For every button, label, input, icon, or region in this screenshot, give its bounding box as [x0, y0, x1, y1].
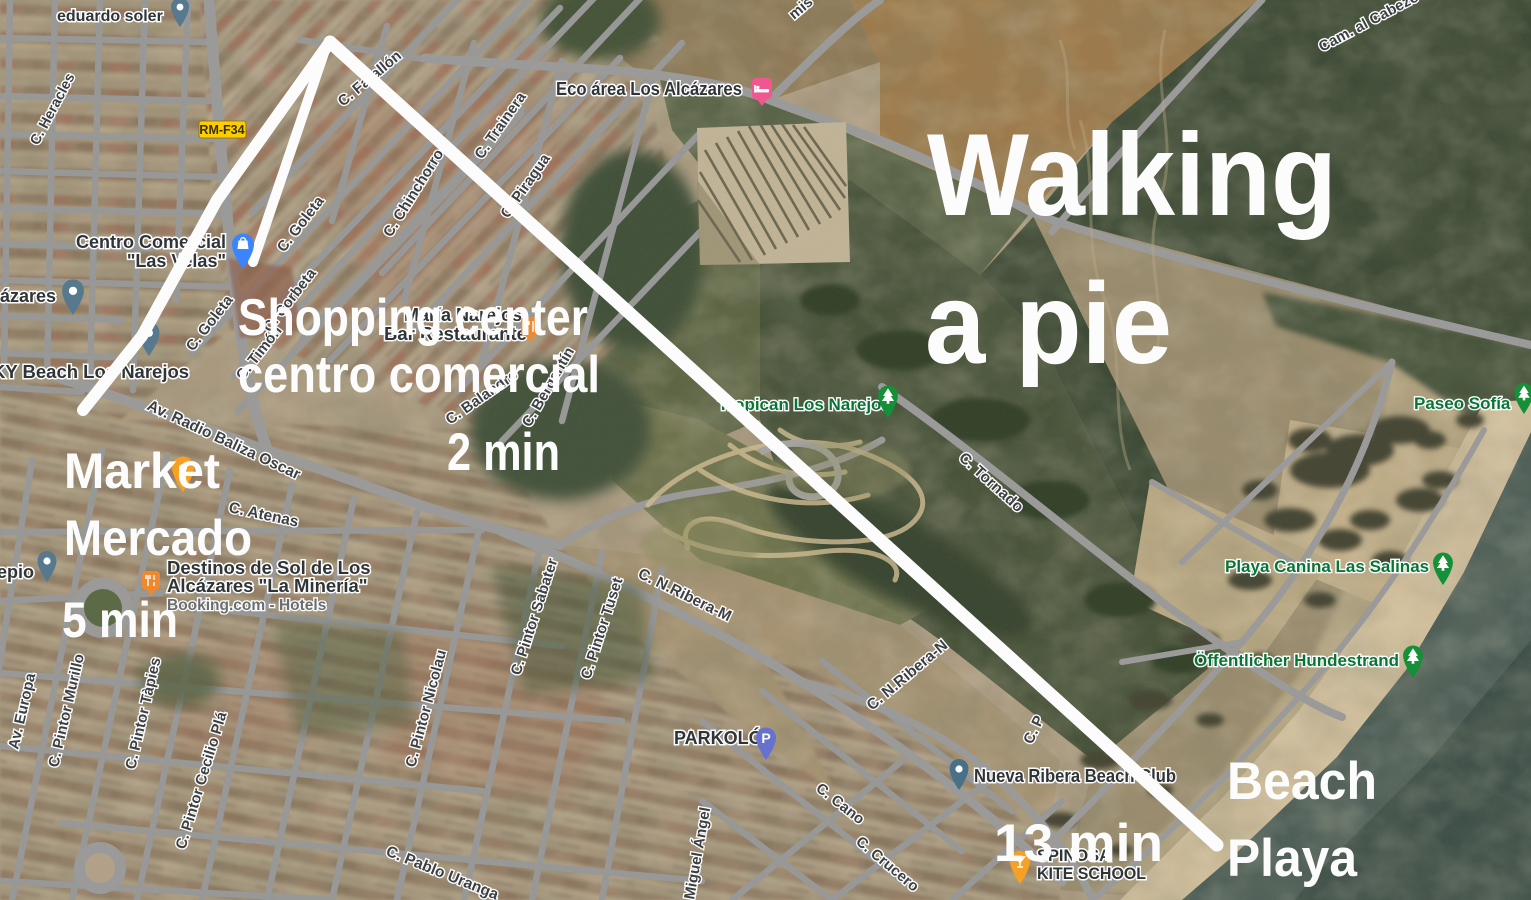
svg-text:2 min: 2 min — [447, 423, 560, 482]
svg-text:Market: Market — [64, 443, 220, 499]
svg-text:Beach: Beach — [1227, 752, 1377, 811]
svg-text:eduardo soler: eduardo soler — [57, 8, 163, 25]
svg-text:Walking: Walking — [927, 109, 1337, 240]
svg-text:Öffentlicher Hundestrand: Öffentlicher Hundestrand — [1194, 651, 1399, 670]
svg-text:Mercado: Mercado — [64, 510, 252, 566]
svg-text:Eco área Los Alcázares: Eco área Los Alcázares — [556, 78, 742, 99]
svg-text:5 min: 5 min — [62, 592, 178, 648]
svg-text:KY Beach Los Narejos: KY Beach Los Narejos — [0, 361, 189, 382]
svg-text:P: P — [761, 730, 770, 746]
svg-text:Paseo Sofía: Paseo Sofía — [1414, 394, 1511, 413]
svg-text:Playa: Playa — [1227, 829, 1357, 888]
svg-text:13 min: 13 min — [994, 814, 1163, 873]
svg-text:Alcázares "La Minería": Alcázares "La Minería" — [167, 575, 368, 596]
svg-text:epio: epio — [0, 562, 34, 582]
svg-text:centro comercial: centro comercial — [238, 346, 600, 404]
svg-text:PARKOLÓ: PARKOLÓ — [674, 727, 763, 748]
svg-text:Booking.com - Hotels: Booking.com - Hotels — [167, 597, 326, 614]
svg-text:cázares: cázares — [0, 286, 56, 306]
svg-text:Shopping center: Shopping center — [238, 289, 588, 347]
svg-text:a pie: a pie — [925, 260, 1172, 388]
svg-text:Playa Canina Las Salinas: Playa Canina Las Salinas — [1225, 557, 1429, 576]
svg-text:RM-F34: RM-F34 — [199, 123, 244, 137]
